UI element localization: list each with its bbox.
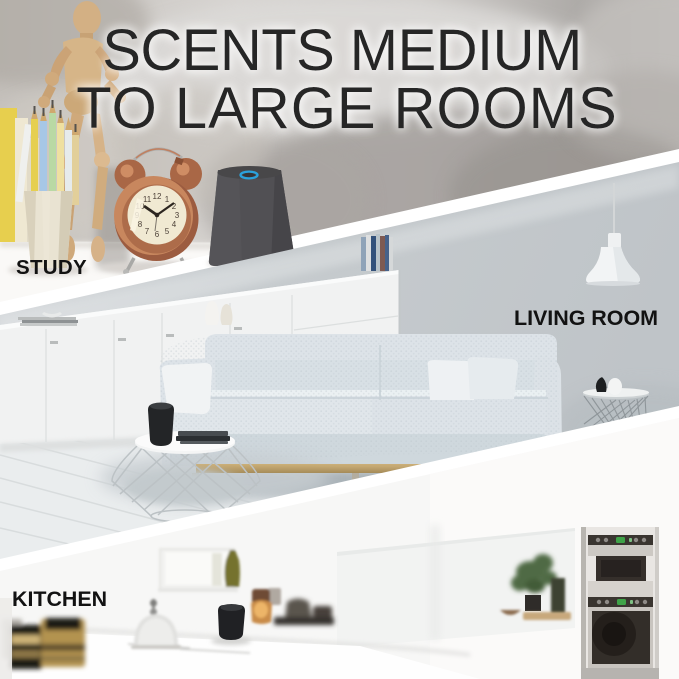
svg-text:KITCHEN: KITCHEN — [12, 587, 107, 611]
svg-text:TO LARGE ROOMS: TO LARGE ROOMS — [76, 76, 617, 141]
svg-text:LIVING ROOM: LIVING ROOM — [514, 306, 658, 330]
svg-text:12: 12 — [153, 192, 162, 201]
svg-text:7: 7 — [145, 227, 150, 236]
svg-text:SCENTS MEDIUM: SCENTS MEDIUM — [102, 18, 581, 83]
svg-text:6: 6 — [155, 230, 160, 239]
svg-text:4: 4 — [172, 220, 177, 229]
svg-text:11: 11 — [143, 195, 152, 204]
svg-text:5: 5 — [165, 227, 170, 236]
svg-text:STUDY: STUDY — [16, 256, 87, 279]
svg-text:3: 3 — [175, 211, 180, 220]
svg-text:8: 8 — [138, 220, 143, 229]
svg-text:1: 1 — [165, 195, 170, 204]
